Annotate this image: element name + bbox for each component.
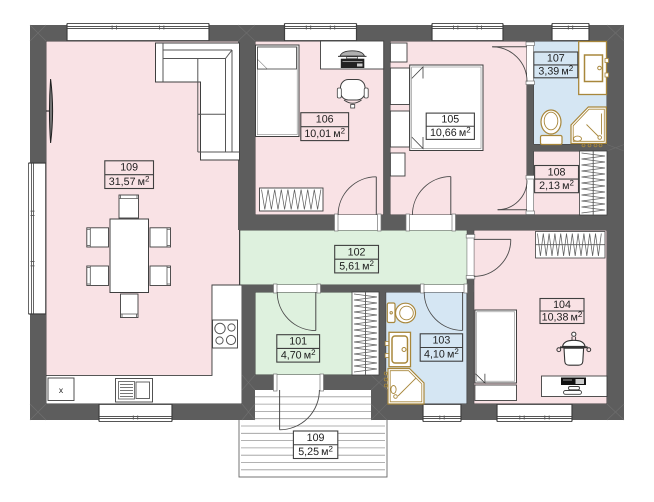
svg-text:109: 109 (307, 432, 325, 444)
svg-text:3,39 м2: 3,39 м2 (538, 64, 573, 78)
svg-text:105: 105 (441, 114, 459, 126)
svg-text:104: 104 (553, 299, 571, 311)
svg-text:4,10 м2: 4,10 м2 (424, 347, 459, 361)
svg-text:10,38 м2: 10,38 м2 (542, 310, 583, 324)
svg-text:10,66 м2: 10,66 м2 (430, 125, 471, 139)
svg-text:31,57 м2: 31,57 м2 (109, 174, 150, 188)
svg-text:107: 107 (547, 52, 565, 64)
svg-text:103: 103 (432, 335, 450, 347)
svg-text:2,13 м2: 2,13 м2 (539, 178, 574, 192)
svg-text:5,61 м2: 5,61 м2 (339, 258, 374, 272)
svg-text:108: 108 (548, 166, 566, 178)
svg-text:10,01 м2: 10,01 м2 (304, 126, 345, 140)
svg-text:5,25 м2: 5,25 м2 (298, 444, 333, 458)
svg-text:101: 101 (289, 336, 307, 348)
svg-text:4,70 м2: 4,70 м2 (281, 348, 316, 362)
svg-text:109: 109 (120, 162, 138, 174)
svg-text:106: 106 (316, 114, 334, 126)
svg-text:102: 102 (348, 246, 366, 258)
